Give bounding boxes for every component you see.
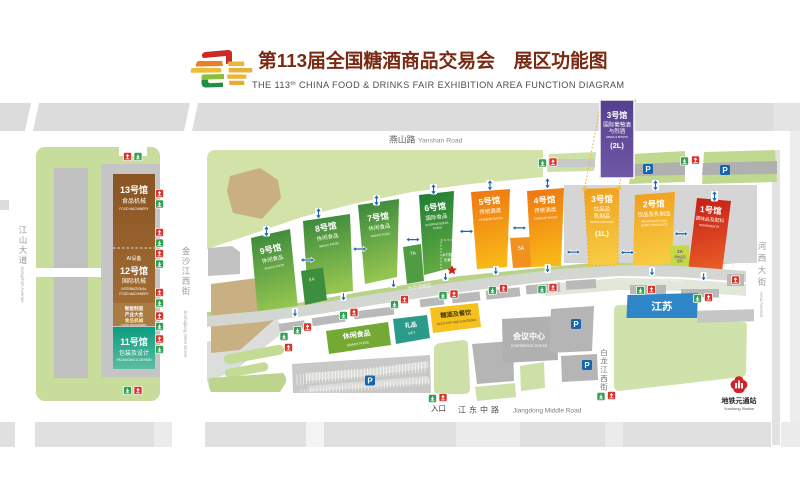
svg-text:CONFERENCE CENTER: CONFERENCE CENTER — [511, 344, 548, 348]
svg-text:FOOD MACHINERY: FOOD MACHINERY — [119, 292, 149, 296]
svg-text:4号馆: 4号馆 — [533, 194, 556, 206]
svg-text:乳制品: 乳制品 — [594, 212, 611, 220]
svg-text:3号馆: 3号馆 — [607, 110, 627, 120]
svg-text:Jinshajiang West Street: Jinshajiang West Street — [183, 310, 188, 358]
svg-text:AI设备: AI设备 — [127, 255, 142, 262]
svg-text:2A: 2A — [677, 249, 684, 254]
svg-text:饮品及: 饮品及 — [594, 205, 611, 213]
svg-text:FOOD MACHINERY: FOOD MACHINERY — [119, 207, 149, 211]
svg-text:第113届全国糖酒商品交易会 展区功能图: 第113届全国糖酒商品交易会 展区功能图 — [258, 49, 608, 71]
svg-text:国际葡萄酒: 国际葡萄酒 — [603, 121, 631, 129]
svg-text:DRINKS AND DAIRY: DRINKS AND DAIRY — [590, 220, 615, 224]
svg-text:地铁元通站: 地铁元通站 — [722, 396, 757, 405]
svg-text:燕山路: 燕山路 — [389, 134, 416, 145]
svg-text:5A: 5A — [518, 246, 525, 252]
svg-text:江东中路: 江东中路 — [458, 405, 502, 415]
svg-text:12号馆: 12号馆 — [120, 265, 148, 276]
svg-text:3号馆: 3号馆 — [591, 194, 613, 204]
svg-text:Yanshan Road: Yanshan Road — [418, 138, 463, 145]
svg-text:INTERNATIONAL: INTERNATIONAL — [121, 287, 146, 291]
svg-text:Hexi Avenue: Hexi Avenue — [759, 292, 764, 318]
svg-text:江苏: 江苏 — [651, 300, 673, 313]
svg-text:Yuantong Station: Yuantong Station — [724, 406, 754, 411]
svg-text:国际机械: 国际机械 — [122, 277, 146, 285]
svg-text:(1L): (1L) — [595, 229, 609, 238]
svg-text:乡村振兴: 乡村振兴 — [442, 252, 457, 257]
svg-text:Jiangdong Middle Road: Jiangdong Middle Road — [513, 408, 582, 415]
svg-text:5号馆: 5号馆 — [478, 195, 501, 207]
svg-text:食品机械: 食品机械 — [122, 197, 146, 205]
svg-text:(2L): (2L) — [610, 141, 624, 150]
svg-text:白龙江西街: 白龙江西街 — [600, 347, 608, 391]
svg-text:THE 113th CHINA FOOD & DRINKS: THE 113th CHINA FOOD & DRINKS FAIR EXHIB… — [252, 80, 624, 90]
svg-text:Jiangshan Avenue: Jiangshan Avenue — [20, 266, 25, 303]
svg-text:包装及设计: 包装及设计 — [119, 349, 149, 357]
svg-text:入口: 入口 — [431, 404, 446, 413]
svg-text:13号馆: 13号馆 — [120, 184, 148, 195]
svg-text:配料: 配料 — [677, 258, 683, 263]
svg-text:WINES & SPIRITS: WINES & SPIRITS — [606, 135, 628, 139]
svg-text:全景馆: 全景馆 — [444, 257, 455, 262]
svg-text:FOOD MACHINERY: FOOD MACHINERY — [121, 323, 147, 327]
svg-text:2号馆: 2号馆 — [643, 199, 666, 210]
svg-text:江山大道: 江山大道 — [19, 225, 28, 265]
svg-text:智能制造: 智能制造 — [125, 305, 144, 312]
svg-text:与烈酒: 与烈酒 — [609, 127, 626, 135]
svg-text:产业大会: 产业大会 — [125, 311, 144, 318]
svg-text:会议中心: 会议中心 — [513, 331, 545, 341]
svg-text:金沙江西街: 金沙江西街 — [182, 246, 191, 296]
svg-text:11号馆: 11号馆 — [120, 336, 148, 347]
svg-text:PACKAGING & DESIGN: PACKAGING & DESIGN — [117, 358, 153, 362]
